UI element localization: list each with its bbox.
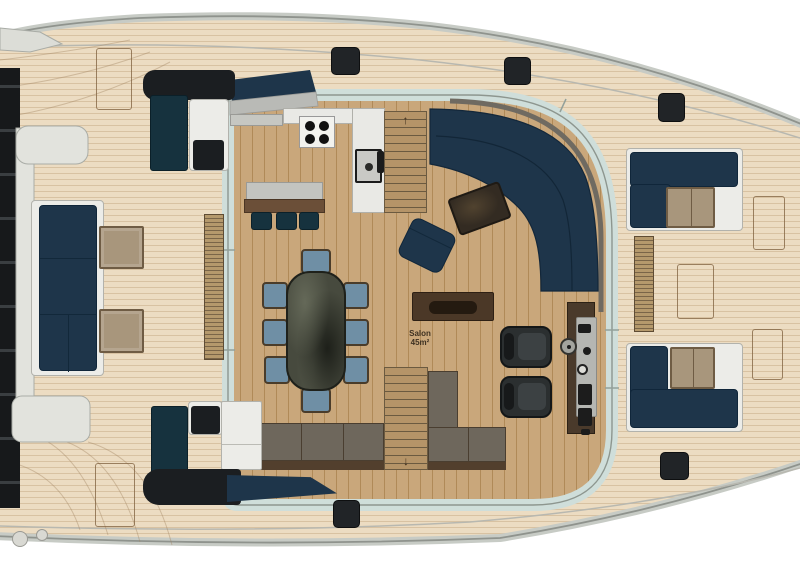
- galley-end-counter: [230, 114, 283, 126]
- stairs-down: ↓: [384, 367, 428, 470]
- bench-sofa-corner: [428, 371, 458, 428]
- side-structure-fwd: [16, 126, 88, 164]
- burner-icon: [305, 134, 315, 144]
- helm-switch: [581, 429, 590, 435]
- dining-chair: [343, 319, 369, 346]
- deck-hatch-dark: [660, 452, 689, 480]
- cushion-seam: [343, 424, 344, 460]
- island-top: [246, 182, 323, 200]
- port-sunpad: [39, 205, 97, 371]
- tv-sideboard: [412, 292, 494, 321]
- bench-sofa-left: [259, 423, 384, 461]
- armchair-back: [504, 383, 514, 410]
- stbd-corner-sofa-fwd-leg: [630, 184, 671, 228]
- table-leaf-seam: [691, 189, 692, 226]
- aft-tray: [191, 406, 220, 434]
- deck-hatch-outline: [677, 264, 714, 319]
- sunpad-seam: [68, 314, 69, 372]
- helm-knob: [583, 347, 591, 355]
- stairs-up: ↑: [384, 111, 427, 213]
- steering-wheel: [560, 338, 577, 355]
- sunpad-seam: [40, 258, 96, 259]
- deck-hatch-dark: [504, 57, 531, 85]
- stbd-corner-sofa-aft: [630, 389, 738, 428]
- helm-armchair: [500, 376, 552, 418]
- armchair-seat: [518, 333, 546, 360]
- armchair-seat: [518, 383, 546, 410]
- burner-icon: [319, 121, 329, 131]
- salon-area-label: Salon 45m²: [388, 329, 452, 347]
- stairs-down-arrow-icon: ↓: [385, 455, 427, 467]
- stbd-corner-sofa-fwd: [630, 152, 738, 187]
- yacht-deck-plan: ↑ ↓: [0, 0, 800, 567]
- winch: [12, 531, 28, 547]
- dining-chair: [262, 319, 288, 346]
- armchair-seam: [410, 228, 452, 249]
- helm-instrument: [578, 324, 591, 333]
- sink-drain: [365, 163, 373, 171]
- deck-hatch-outline: [753, 196, 785, 250]
- cushion-seam: [468, 428, 469, 461]
- bar-stool: [299, 212, 319, 230]
- stbd-deck-table-aft: [670, 347, 715, 389]
- fwd-tray: [193, 140, 224, 170]
- deck-hatch-outline: [96, 48, 132, 110]
- side-structure-aft: [12, 396, 90, 442]
- fwd-chaise: [150, 95, 188, 171]
- deck-hatch-dark: [333, 500, 360, 528]
- bar-stool: [251, 212, 272, 230]
- port-boarding-mat: [204, 214, 224, 360]
- helm-display: [578, 408, 592, 426]
- burner-icon: [305, 121, 315, 131]
- aft-sunpad: [143, 469, 241, 505]
- aft-cabinet: [221, 401, 262, 470]
- cushion-seam: [301, 424, 302, 460]
- armchair-back: [504, 333, 514, 360]
- helm-armchair: [500, 326, 552, 368]
- port-deck-table: [99, 309, 144, 353]
- dining-chair: [343, 282, 369, 309]
- burner-icon: [319, 134, 329, 144]
- helm-display: [578, 384, 592, 405]
- island-front: [244, 199, 325, 213]
- deck-hatch-dark: [658, 93, 685, 122]
- cooktop: [299, 116, 335, 148]
- dining-table: [286, 271, 346, 391]
- stbd-boarding-mat: [634, 236, 654, 332]
- port-deck-table: [99, 226, 144, 269]
- aft-chaise: [151, 406, 188, 478]
- winch: [36, 529, 48, 541]
- salon-area-value: 45m²: [411, 338, 430, 347]
- table-leaf-seam: [693, 349, 694, 387]
- stairs-up-arrow-icon: ↑: [385, 114, 426, 126]
- galley-sink-controls: [377, 151, 384, 173]
- wheel-hub: [567, 345, 571, 349]
- dining-chair: [262, 282, 288, 309]
- bar-stool: [276, 212, 297, 230]
- cabinet-line: [222, 444, 261, 445]
- sideboard-inset: [429, 301, 477, 314]
- deck-hatch-dark: [331, 47, 360, 75]
- salon-name: Salon: [409, 329, 431, 338]
- deck-hatch-outline: [95, 463, 135, 527]
- stbd-deck-table-fwd: [666, 187, 715, 228]
- dining-chair: [301, 388, 331, 413]
- deck-hatch-outline: [752, 329, 783, 380]
- bench-sofa-right: [428, 427, 506, 462]
- helm-gauge: [577, 364, 588, 375]
- dining-chair: [343, 356, 369, 384]
